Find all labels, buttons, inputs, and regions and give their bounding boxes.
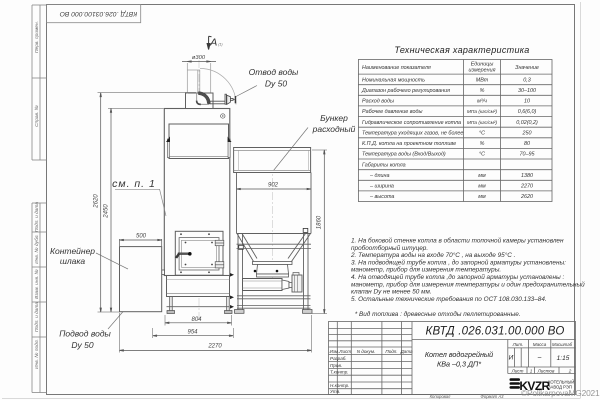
svg-text:954: 954 [187, 330, 198, 336]
svg-text:80: 80 [524, 141, 530, 147]
svg-text:измерения: измерения [469, 68, 496, 74]
svg-text:Расход воды: Расход воды [362, 99, 394, 105]
svg-text:манометр, прибор для измерения: манометр, прибор для измерения температу… [351, 266, 501, 274]
svg-text:1. На боковой стенке котла в: 1. На боковой стенке котла в области топ… [351, 237, 564, 245]
svg-text:см. п. 1: см. п. 1 [112, 178, 156, 190]
svg-text:2270: 2270 [520, 184, 533, 190]
svg-text:Утв.: Утв. [330, 389, 340, 394]
svg-text:°С: °С [479, 131, 485, 137]
svg-text:1380: 1380 [521, 173, 533, 179]
svg-text:70–95: 70–95 [520, 152, 536, 158]
svg-text:– длина: – длина [369, 173, 389, 179]
svg-text:250: 250 [522, 131, 532, 137]
svg-text:Инв. № подл.: Инв. № подл. [34, 339, 40, 369]
svg-text:Номинальная мощность: Номинальная мощность [362, 77, 425, 83]
svg-text:2620: 2620 [520, 194, 533, 200]
svg-text:Габариты котла: Габариты котла [362, 162, 406, 168]
svg-text:0,6(6,0): 0,6(6,0) [518, 109, 537, 115]
svg-text:КВа –0,3 ДП*: КВа –0,3 ДП* [437, 360, 481, 369]
svg-text:Перв. примен.: Перв. примен. [34, 21, 40, 53]
svg-text:Техническая характеристика: Техническая характеристика [394, 45, 529, 55]
svg-text:шлака: шлака [60, 256, 86, 266]
svg-text:Отвод воды: Отвод воды [249, 67, 299, 77]
svg-text:2: 2 [568, 368, 572, 373]
svg-text:Температура воды (Вход/Выход): Температура воды (Вход/Выход) [362, 152, 446, 158]
svg-text:1: 1 [530, 368, 533, 373]
svg-text:КВТД .026.03100.000 ВО: КВТД .026.03100.000 ВО [59, 10, 137, 17]
svg-text:мм: мм [478, 184, 486, 190]
svg-text:Котел водогрейный: Котел водогрейный [425, 350, 493, 359]
svg-text:N докум.: N докум. [357, 349, 376, 354]
svg-text:Формат А3: Формат А3 [481, 394, 505, 399]
svg-text:A: A [209, 36, 217, 48]
svg-text:Наименование показателя: Наименование показателя [362, 65, 431, 71]
svg-text:0,3: 0,3 [523, 77, 531, 83]
svg-text:Масштаб: Масштаб [552, 342, 573, 347]
svg-text:902: 902 [268, 183, 279, 189]
svg-text:Диапазон рабочего регулировани: Диапазон рабочего регулирования [361, 88, 450, 94]
svg-text:4. На отводящей трубе котла ,: 4. На отводящей трубе котла ,до запорной… [351, 273, 564, 281]
svg-text:Dy 50: Dy 50 [71, 340, 93, 350]
svg-text:И: И [509, 355, 514, 362]
svg-text:Температура уходящих газов, не: Температура уходящих газов, не более [362, 131, 463, 137]
svg-text:Бункер: Бункер [320, 113, 348, 123]
svg-text:Dy 50: Dy 50 [265, 79, 287, 89]
svg-text:манометр, прибор для измерения: манометр, прибор для измерения температу… [351, 280, 585, 288]
svg-text:°С: °С [479, 152, 485, 158]
svg-text:Изм.Лист: Изм.Лист [330, 349, 352, 354]
svg-text:Гидравлическое сопротивление к: Гидравлическое сопротивление котла [362, 120, 461, 126]
svg-text:Контейнер: Контейнер [50, 246, 95, 256]
svg-text:%: % [480, 141, 485, 147]
svg-text:– высота: – высота [369, 194, 394, 200]
svg-text:2270: 2270 [207, 344, 222, 350]
svg-text:КВТД .026.031.00.000 ВО: КВТД .026.031.00.000 ВО [425, 326, 564, 338]
svg-text:2. Температура воды на входе: 2. Температура воды на входе 70°С , на в… [350, 251, 515, 259]
svg-text:0,02(0,2): 0,02(0,2) [516, 120, 538, 126]
svg-text:Разраб.: Разраб. [330, 356, 347, 361]
svg-text:К.П.Д. котла на проектном топл: К.П.Д. котла на проектном топливе [362, 141, 456, 147]
svg-text:5. Остальные технические треб: 5. Остальные технические требования по О… [351, 295, 547, 303]
svg-text:Т.контр.: Т.контр. [330, 370, 349, 375]
svg-text:Лит.: Лит. [512, 342, 524, 347]
svg-text:МВт: МВт [476, 77, 489, 83]
svg-text:30–100: 30–100 [518, 88, 536, 94]
svg-text:–: – [537, 355, 542, 362]
svg-text:Пров.: Пров. [330, 363, 342, 368]
svg-text:%: % [480, 88, 485, 94]
svg-text:м³/ч: м³/ч [477, 99, 487, 105]
svg-text:– ширина: – ширина [369, 184, 394, 190]
svg-text:(1): (1) [218, 43, 222, 47]
svg-text:Инв. № дубл.: Инв. № дубл. [34, 234, 40, 264]
svg-text:Значение: Значение [515, 65, 539, 71]
svg-text:Дата: Дата [399, 349, 413, 354]
svg-text:Справ. №: Справ. № [34, 105, 40, 127]
svg-text:500: 500 [136, 234, 147, 240]
svg-text:Копировал: Копировал [430, 394, 451, 399]
svg-text:пробоотборный штуцер.: пробоотборный штуцер. [351, 244, 428, 252]
svg-text:Подп. и дата: Подп. и дата [34, 202, 40, 232]
svg-text:©PolikarpovaMG2021: ©PolikarpovaMG2021 [521, 388, 600, 398]
svg-text:Рабочее давление воды: Рабочее давление воды [362, 109, 422, 115]
svg-text:Подп. и дата: Подп. и дата [34, 302, 40, 332]
svg-text:Масса: Масса [533, 342, 547, 347]
svg-text:Н.контр.: Н.контр. [330, 383, 349, 388]
svg-text:Подп.: Подп. [385, 349, 397, 354]
svg-text:мм: мм [478, 194, 486, 200]
svg-text:1860: 1860 [317, 215, 323, 229]
svg-text:3. На подводящей трубе котла: 3. На подводящей трубе котла , до запорн… [351, 258, 566, 266]
svg-text:1:15: 1:15 [557, 355, 570, 362]
svg-text:Листов: Листов [537, 368, 555, 373]
svg-text:Подвод воды: Подвод воды [59, 329, 111, 339]
svg-text:клапан Dу не менее 50 мм.: клапан Dу не менее 50 мм. [351, 289, 432, 296]
svg-text:2450: 2450 [104, 204, 110, 219]
svg-text:Взам. инв. №: Взам. инв. № [34, 269, 40, 299]
svg-text:ø300: ø300 [192, 55, 206, 61]
svg-text:804: 804 [191, 317, 202, 323]
svg-text:МПа (кгс/см²): МПа (кгс/см²) [467, 120, 498, 126]
svg-text:МПа (кгс/см²): МПа (кгс/см²) [467, 109, 498, 115]
svg-text:Лист: Лист [511, 368, 524, 373]
svg-text:мм: мм [478, 173, 486, 179]
svg-text:10: 10 [524, 99, 530, 105]
svg-text:* Вид топлива : древесные отх: * Вид топлива : древесные отходы пеллети… [355, 310, 521, 318]
svg-text:расходный: расходный [312, 124, 356, 134]
svg-text:2620: 2620 [94, 194, 100, 209]
